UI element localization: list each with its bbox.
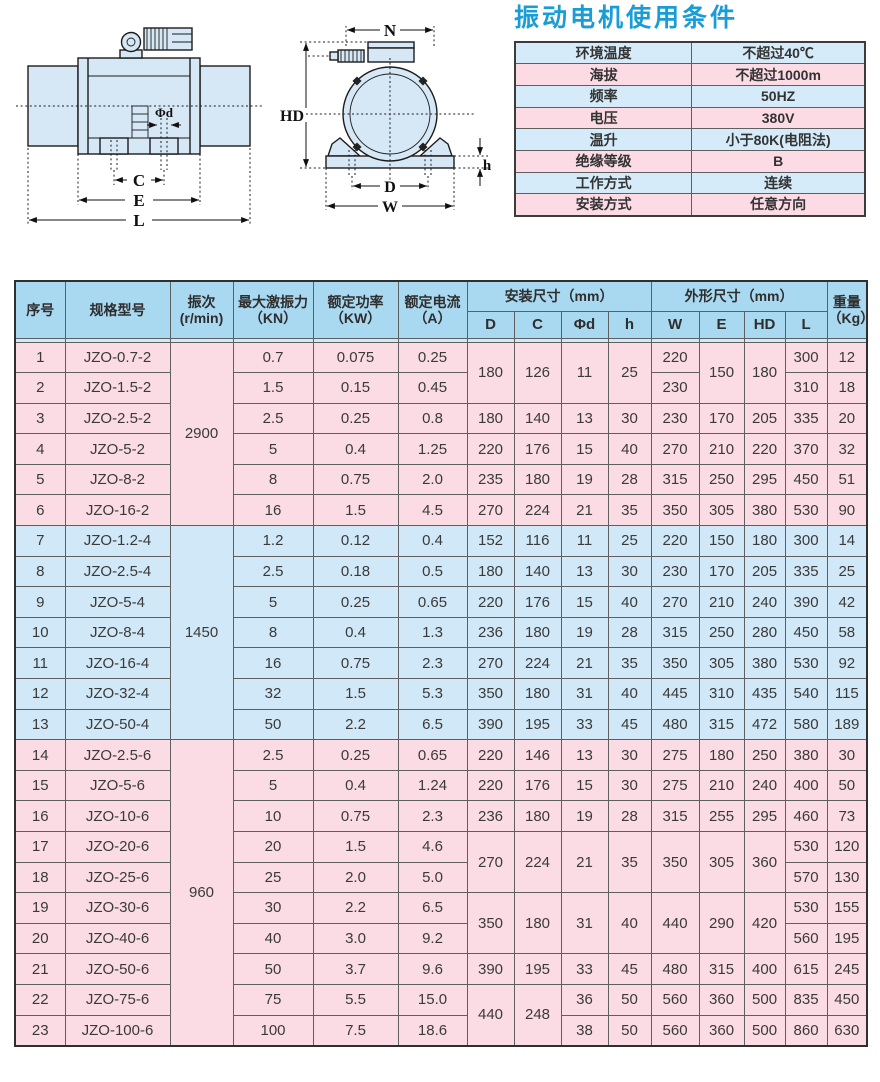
spec-cell: 19 bbox=[561, 464, 608, 495]
spec-cell: JZO-0.7-2 bbox=[65, 342, 170, 373]
condition-label: 频率 bbox=[515, 85, 692, 107]
spec-cell: 42 bbox=[827, 587, 867, 618]
condition-value: 不超过1000m bbox=[692, 64, 865, 86]
spec-row: 9JZO-5-450.250.6522017615402702102403904… bbox=[15, 587, 867, 618]
spec-cell: 205 bbox=[744, 403, 785, 434]
spec-cell: 0.4 bbox=[313, 617, 398, 648]
spec-cell: 31 bbox=[561, 679, 608, 710]
spec-cell: 224 bbox=[514, 648, 561, 679]
spec-row: 15JZO-5-650.41.2422017615302752102404005… bbox=[15, 770, 867, 801]
spec-cell: 350 bbox=[651, 648, 699, 679]
spec-cell: 220 bbox=[467, 434, 514, 465]
spec-cell: 180 bbox=[514, 893, 561, 954]
col-header-l: L bbox=[785, 311, 827, 338]
spec-cell: 1.5 bbox=[313, 679, 398, 710]
spec-row: 16JZO-10-6100.752.3236180192831525529546… bbox=[15, 801, 867, 832]
spec-cell: 19 bbox=[561, 801, 608, 832]
spec-cell: 370 bbox=[785, 434, 827, 465]
spec-cell: 50 bbox=[233, 709, 313, 740]
condition-row: 安装方式任意方向 bbox=[515, 194, 865, 216]
spec-cell: 33 bbox=[561, 954, 608, 985]
spec-cell: 290 bbox=[699, 893, 744, 954]
spec-cell: 13 bbox=[561, 403, 608, 434]
spec-cell: JZO-5-4 bbox=[65, 587, 170, 618]
spec-cell: 92 bbox=[827, 648, 867, 679]
spec-cell: 0.25 bbox=[398, 342, 467, 373]
spec-cell: JZO-8-2 bbox=[65, 464, 170, 495]
spec-cell: 180 bbox=[467, 556, 514, 587]
spec-cell: 40 bbox=[608, 434, 651, 465]
spec-cell: 1450 bbox=[170, 526, 233, 740]
spec-cell: 960 bbox=[170, 740, 233, 1046]
spec-cell: 20 bbox=[233, 832, 313, 863]
spec-cell: 5.0 bbox=[398, 862, 467, 893]
spec-cell: 33 bbox=[561, 709, 608, 740]
spec-cell: 40 bbox=[608, 893, 651, 954]
spec-cell: 90 bbox=[827, 495, 867, 526]
spec-cell: 245 bbox=[827, 954, 867, 985]
spec-cell: 15 bbox=[561, 434, 608, 465]
spec-cell: 500 bbox=[744, 1015, 785, 1046]
col-header-e: E bbox=[699, 311, 744, 338]
spec-cell: 230 bbox=[651, 556, 699, 587]
condition-label: 工作方式 bbox=[515, 172, 692, 194]
spec-cell: 305 bbox=[699, 495, 744, 526]
spec-cell: 6.5 bbox=[398, 893, 467, 924]
spec-cell: 305 bbox=[699, 648, 744, 679]
spec-cell: 560 bbox=[651, 1015, 699, 1046]
spec-cell: 0.4 bbox=[313, 770, 398, 801]
spec-cell: 11 bbox=[561, 526, 608, 557]
spec-cell: 45 bbox=[608, 954, 651, 985]
spec-cell: 0.45 bbox=[398, 373, 467, 404]
condition-value: 50HZ bbox=[692, 85, 865, 107]
spec-cell: 195 bbox=[514, 709, 561, 740]
spec-cell: 450 bbox=[827, 984, 867, 1015]
condition-label: 海拔 bbox=[515, 64, 692, 86]
spec-cell: 5 bbox=[15, 464, 65, 495]
spec-cell: 220 bbox=[744, 434, 785, 465]
spec-cell: 20 bbox=[827, 403, 867, 434]
spec-cell: 3.7 bbox=[313, 954, 398, 985]
spec-cell: 51 bbox=[827, 464, 867, 495]
spec-cell: JZO-2.5-4 bbox=[65, 556, 170, 587]
spec-cell: 126 bbox=[514, 342, 561, 403]
spec-cell: 1.5 bbox=[313, 495, 398, 526]
spec-cell: 28 bbox=[608, 617, 651, 648]
col-group-mounting-dims: 安装尺寸（mm） bbox=[467, 281, 651, 311]
col-header-seq: 序号 bbox=[15, 281, 65, 338]
col-header-weight: 重量（Kg） bbox=[827, 281, 867, 338]
spec-cell: JZO-10-6 bbox=[65, 801, 170, 832]
condition-value: B bbox=[692, 150, 865, 172]
spec-cell: 0.8 bbox=[398, 403, 467, 434]
spec-cell: 170 bbox=[699, 403, 744, 434]
spec-cell: 7 bbox=[15, 526, 65, 557]
spec-cell: 130 bbox=[827, 862, 867, 893]
condition-value: 不超过40℃ bbox=[692, 42, 865, 64]
spec-cell: 5 bbox=[233, 770, 313, 801]
spec-cell: 445 bbox=[651, 679, 699, 710]
spec-cell: 400 bbox=[785, 770, 827, 801]
spec-cell: 5.5 bbox=[313, 984, 398, 1015]
spec-cell: 350 bbox=[651, 832, 699, 893]
conditions-table: 环境温度不超过40℃海拔不超过1000m频率50HZ电压380V温升小于80K(… bbox=[514, 41, 866, 217]
spec-cell: 21 bbox=[15, 954, 65, 985]
spec-cell: 100 bbox=[233, 1015, 313, 1046]
spec-cell: JZO-5-2 bbox=[65, 434, 170, 465]
spec-cell: 0.75 bbox=[313, 464, 398, 495]
spec-cell: JZO-50-4 bbox=[65, 709, 170, 740]
spec-cell: 19 bbox=[15, 893, 65, 924]
spec-cell: 530 bbox=[785, 832, 827, 863]
spec-cell: 40 bbox=[233, 923, 313, 954]
spec-cell: 2.2 bbox=[313, 709, 398, 740]
spec-cell: 152 bbox=[467, 526, 514, 557]
spec-cell: 30 bbox=[608, 403, 651, 434]
spec-cell: 472 bbox=[744, 709, 785, 740]
spec-cell: 2900 bbox=[170, 342, 233, 526]
spec-cell: 210 bbox=[699, 587, 744, 618]
spec-cell: JZO-100-6 bbox=[65, 1015, 170, 1046]
spec-cell: 30 bbox=[608, 556, 651, 587]
spec-cell: JZO-5-6 bbox=[65, 770, 170, 801]
spec-cell: 150 bbox=[699, 526, 744, 557]
spec-cell: 50 bbox=[827, 770, 867, 801]
spec-cell: 115 bbox=[827, 679, 867, 710]
spec-cell: 0.5 bbox=[398, 556, 467, 587]
spec-cell: 9.2 bbox=[398, 923, 467, 954]
spec-cell: 180 bbox=[699, 740, 744, 771]
spec-cell: 180 bbox=[744, 526, 785, 557]
spec-cell: 236 bbox=[467, 801, 514, 832]
spec-cell: JZO-75-6 bbox=[65, 984, 170, 1015]
condition-row: 环境温度不超过40℃ bbox=[515, 42, 865, 64]
spec-row: 21JZO-50-6503.79.63901953345480315400615… bbox=[15, 954, 867, 985]
spec-cell: 315 bbox=[651, 801, 699, 832]
condition-label: 绝缘等级 bbox=[515, 150, 692, 172]
spec-cell: 270 bbox=[651, 434, 699, 465]
spec-cell: 23 bbox=[15, 1015, 65, 1046]
spec-cell: 14 bbox=[827, 526, 867, 557]
spec-cell: 176 bbox=[514, 770, 561, 801]
spec-cell: 450 bbox=[785, 464, 827, 495]
dim-label-w: W bbox=[382, 199, 398, 216]
spec-row: 4JZO-5-250.41.25220176154027021022037032 bbox=[15, 434, 867, 465]
spec-cell: 195 bbox=[827, 923, 867, 954]
spec-cell: 11 bbox=[15, 648, 65, 679]
spec-cell: 360 bbox=[699, 984, 744, 1015]
spec-cell: 9.6 bbox=[398, 954, 467, 985]
spec-cell: JZO-1.2-4 bbox=[65, 526, 170, 557]
spec-cell: 0.12 bbox=[313, 526, 398, 557]
col-header-h: h bbox=[608, 311, 651, 338]
spec-cell: 21 bbox=[561, 648, 608, 679]
spec-row: 6JZO-16-2161.54.527022421353503053805309… bbox=[15, 495, 867, 526]
spec-cell: 25 bbox=[608, 342, 651, 403]
condition-value: 380V bbox=[692, 107, 865, 129]
spec-cell: 280 bbox=[744, 617, 785, 648]
spec-cell: 4.6 bbox=[398, 832, 467, 863]
spec-row: 5JZO-8-280.752.0235180192831525029545051 bbox=[15, 464, 867, 495]
spec-row: 12JZO-32-4321.55.33501803140445310435540… bbox=[15, 679, 867, 710]
spec-row: 23JZO-100-61007.518.63850560360500860630 bbox=[15, 1015, 867, 1046]
col-header-model: 规格型号 bbox=[65, 281, 170, 338]
spec-cell: 248 bbox=[514, 984, 561, 1045]
spec-row: 8JZO-2.5-42.50.180.518014013302301702053… bbox=[15, 556, 867, 587]
spec-cell: 25 bbox=[608, 526, 651, 557]
condition-row: 海拔不超过1000m bbox=[515, 64, 865, 86]
spec-cell: 0.075 bbox=[313, 342, 398, 373]
spec-cell: 3 bbox=[15, 403, 65, 434]
motor-front-body bbox=[306, 42, 474, 182]
spec-cell: 2.2 bbox=[313, 893, 398, 924]
spec-cell: 270 bbox=[467, 832, 514, 893]
spec-cell: 28 bbox=[608, 464, 651, 495]
spec-cell: 540 bbox=[785, 679, 827, 710]
spec-cell: 220 bbox=[467, 740, 514, 771]
col-header-w: W bbox=[651, 311, 699, 338]
spec-cell: 5 bbox=[233, 434, 313, 465]
spec-cell: 275 bbox=[651, 740, 699, 771]
spec-cell: 4.5 bbox=[398, 495, 467, 526]
col-header-phid: Φd bbox=[561, 311, 608, 338]
spec-cell: 2 bbox=[15, 373, 65, 404]
spec-cell: 140 bbox=[514, 556, 561, 587]
spec-cell: 250 bbox=[699, 464, 744, 495]
spec-row: 22JZO-75-6755.515.0440248365056036050083… bbox=[15, 984, 867, 1015]
spec-cell: 11 bbox=[561, 342, 608, 403]
spec-cell: JZO-1.5-2 bbox=[65, 373, 170, 404]
spec-cell: 73 bbox=[827, 801, 867, 832]
spec-cell: 50 bbox=[233, 954, 313, 985]
spec-cell: 8 bbox=[233, 464, 313, 495]
spec-cell: 315 bbox=[651, 617, 699, 648]
spec-cell: 146 bbox=[514, 740, 561, 771]
spec-table: 序号 规格型号 振次(r/min) 最大激振力（KN） 额定功率（KW） 额定电… bbox=[14, 280, 868, 1047]
spec-cell: 21 bbox=[561, 495, 608, 526]
spec-cell: 140 bbox=[514, 403, 561, 434]
spec-cell: 360 bbox=[699, 1015, 744, 1046]
spec-cell: 350 bbox=[467, 679, 514, 710]
spec-cell: 0.75 bbox=[313, 801, 398, 832]
spec-cell: 390 bbox=[467, 954, 514, 985]
spec-cell: 150 bbox=[699, 342, 744, 403]
spec-cell: 615 bbox=[785, 954, 827, 985]
spec-cell: JZO-30-6 bbox=[65, 893, 170, 924]
spec-cell: 0.75 bbox=[313, 648, 398, 679]
spec-cell: 180 bbox=[514, 464, 561, 495]
spec-cell: 40 bbox=[608, 587, 651, 618]
condition-label: 温升 bbox=[515, 129, 692, 151]
spec-cell: 22 bbox=[15, 984, 65, 1015]
spec-cell: 8 bbox=[15, 556, 65, 587]
col-header-current: 额定电流（A） bbox=[398, 281, 467, 338]
spec-cell: 315 bbox=[699, 954, 744, 985]
spec-cell: 12 bbox=[15, 679, 65, 710]
spec-row: 17JZO-20-6201.54.62702242135350305360530… bbox=[15, 832, 867, 863]
spec-cell: 295 bbox=[744, 801, 785, 832]
spec-cell: 0.4 bbox=[398, 526, 467, 557]
spec-cell: 530 bbox=[785, 495, 827, 526]
spec-cell: 2.3 bbox=[398, 801, 467, 832]
spec-cell: 18 bbox=[15, 862, 65, 893]
spec-cell: 13 bbox=[15, 709, 65, 740]
spec-cell: 240 bbox=[744, 770, 785, 801]
spec-cell: 15 bbox=[15, 770, 65, 801]
spec-cell: 0.15 bbox=[313, 373, 398, 404]
spec-cell: 310 bbox=[699, 679, 744, 710]
spec-cell: 275 bbox=[651, 770, 699, 801]
spec-cell: 2.3 bbox=[398, 648, 467, 679]
spec-cell: 31 bbox=[561, 893, 608, 954]
spec-cell: 305 bbox=[699, 832, 744, 893]
condition-row: 电压380V bbox=[515, 107, 865, 129]
spec-cell: 180 bbox=[467, 403, 514, 434]
spec-row: 11JZO-16-4160.752.3270224213535030538053… bbox=[15, 648, 867, 679]
spec-cell: 36 bbox=[561, 984, 608, 1015]
spec-cell: 0.65 bbox=[398, 587, 467, 618]
spec-cell: 5.3 bbox=[398, 679, 467, 710]
col-header-power: 额定功率（KW） bbox=[313, 281, 398, 338]
spec-cell: JZO-32-4 bbox=[65, 679, 170, 710]
spec-cell: 21 bbox=[561, 832, 608, 893]
spec-cell: 12 bbox=[827, 342, 867, 373]
spec-cell: 1.5 bbox=[233, 373, 313, 404]
spec-cell: 224 bbox=[514, 832, 561, 893]
spec-cell: 58 bbox=[827, 617, 867, 648]
spec-cell: 16 bbox=[233, 495, 313, 526]
spec-cell: 530 bbox=[785, 893, 827, 924]
condition-row: 绝缘等级B bbox=[515, 150, 865, 172]
spec-cell: 16 bbox=[233, 648, 313, 679]
spec-cell: 380 bbox=[785, 740, 827, 771]
spec-cell: 25 bbox=[233, 862, 313, 893]
spec-cell: 480 bbox=[651, 954, 699, 985]
spec-cell: 380 bbox=[744, 495, 785, 526]
dim-label-l: L bbox=[133, 211, 144, 230]
spec-cell: 35 bbox=[608, 832, 651, 893]
spec-cell: 250 bbox=[699, 617, 744, 648]
spec-row: 19JZO-30-6302.26.53501803140440290420530… bbox=[15, 893, 867, 924]
spec-cell: 1.5 bbox=[313, 832, 398, 863]
spec-row: 3JZO-2.5-22.50.250.818014013302301702053… bbox=[15, 403, 867, 434]
spec-cell: 180 bbox=[514, 617, 561, 648]
condition-value: 任意方向 bbox=[692, 194, 865, 216]
dim-label-d: D bbox=[384, 179, 396, 196]
spec-cell: 0.65 bbox=[398, 740, 467, 771]
spec-cell: 180 bbox=[467, 342, 514, 403]
condition-label: 安装方式 bbox=[515, 194, 692, 216]
dim-label-h: h bbox=[483, 158, 492, 174]
spec-cell: 315 bbox=[651, 464, 699, 495]
spec-row: 7JZO-1.2-414501.20.120.41521161125220150… bbox=[15, 526, 867, 557]
spec-cell: 2.5 bbox=[233, 740, 313, 771]
spec-cell: 230 bbox=[651, 403, 699, 434]
spec-cell: 116 bbox=[514, 526, 561, 557]
spec-cell: 240 bbox=[744, 587, 785, 618]
spec-cell: 630 bbox=[827, 1015, 867, 1046]
spec-cell: 120 bbox=[827, 832, 867, 863]
spec-cell: 250 bbox=[744, 740, 785, 771]
spec-cell: 18 bbox=[827, 373, 867, 404]
spec-row: 1JZO-0.7-229000.70.0750.2518012611252201… bbox=[15, 342, 867, 373]
spec-row: 14JZO-2.5-69602.50.250.65220146133027518… bbox=[15, 740, 867, 771]
spec-cell: 220 bbox=[467, 770, 514, 801]
spec-cell: 15 bbox=[561, 587, 608, 618]
spec-cell: 270 bbox=[651, 587, 699, 618]
spec-cell: 30 bbox=[608, 740, 651, 771]
spec-cell: 38 bbox=[561, 1015, 608, 1046]
spec-cell: 560 bbox=[785, 923, 827, 954]
spec-cell: 0.25 bbox=[313, 403, 398, 434]
technical-drawings: Φd C E L bbox=[14, 18, 512, 236]
col-header-d: D bbox=[467, 311, 514, 338]
spec-cell: 435 bbox=[744, 679, 785, 710]
spec-cell: 255 bbox=[699, 801, 744, 832]
spec-cell: 180 bbox=[744, 342, 785, 403]
col-header-hd: HD bbox=[744, 311, 785, 338]
spec-cell: 0.25 bbox=[313, 740, 398, 771]
spec-cell: 300 bbox=[785, 342, 827, 373]
spec-cell: 13 bbox=[561, 556, 608, 587]
spec-cell: 440 bbox=[467, 984, 514, 1045]
spec-cell: 25 bbox=[827, 556, 867, 587]
spec-cell: 450 bbox=[785, 617, 827, 648]
motor-front-view-drawing: N HD h D W bbox=[280, 18, 512, 230]
spec-cell: 19 bbox=[561, 617, 608, 648]
spec-cell: 570 bbox=[785, 862, 827, 893]
spec-cell: 14 bbox=[15, 740, 65, 771]
spec-cell: 420 bbox=[744, 893, 785, 954]
spec-row: 13JZO-50-4502.26.53901953345480315472580… bbox=[15, 709, 867, 740]
spec-cell: 560 bbox=[651, 984, 699, 1015]
spec-cell: 15 bbox=[561, 770, 608, 801]
spec-cell: 315 bbox=[699, 709, 744, 740]
spec-cell: 32 bbox=[827, 434, 867, 465]
spec-cell: 224 bbox=[514, 495, 561, 526]
spec-cell: 236 bbox=[467, 617, 514, 648]
spec-cell: 335 bbox=[785, 403, 827, 434]
spec-cell: 300 bbox=[785, 526, 827, 557]
condition-value: 连续 bbox=[692, 172, 865, 194]
spec-cell: 460 bbox=[785, 801, 827, 832]
spec-cell: 295 bbox=[744, 464, 785, 495]
spec-cell: 480 bbox=[651, 709, 699, 740]
spec-cell: 17 bbox=[15, 832, 65, 863]
spec-cell: 0.18 bbox=[313, 556, 398, 587]
spec-cell: 220 bbox=[467, 587, 514, 618]
spec-cell: 360 bbox=[744, 832, 785, 893]
spec-cell: 0.4 bbox=[313, 434, 398, 465]
condition-row: 频率50HZ bbox=[515, 85, 865, 107]
dim-label-hd: HD bbox=[280, 108, 304, 125]
spec-cell: 15.0 bbox=[398, 984, 467, 1015]
spec-cell: 13 bbox=[561, 740, 608, 771]
spec-cell: 230 bbox=[651, 373, 699, 404]
spec-cell: 30 bbox=[608, 770, 651, 801]
spec-cell: 189 bbox=[827, 709, 867, 740]
spec-cell: 50 bbox=[608, 1015, 651, 1046]
condition-row: 工作方式连续 bbox=[515, 172, 865, 194]
spec-cell: JZO-2.5-2 bbox=[65, 403, 170, 434]
condition-row: 温升小于80K(电阻法) bbox=[515, 129, 865, 151]
spec-cell: 335 bbox=[785, 556, 827, 587]
spec-cell: 176 bbox=[514, 587, 561, 618]
spec-cell: 835 bbox=[785, 984, 827, 1015]
spec-cell: 10 bbox=[233, 801, 313, 832]
spec-cell: 500 bbox=[744, 984, 785, 1015]
